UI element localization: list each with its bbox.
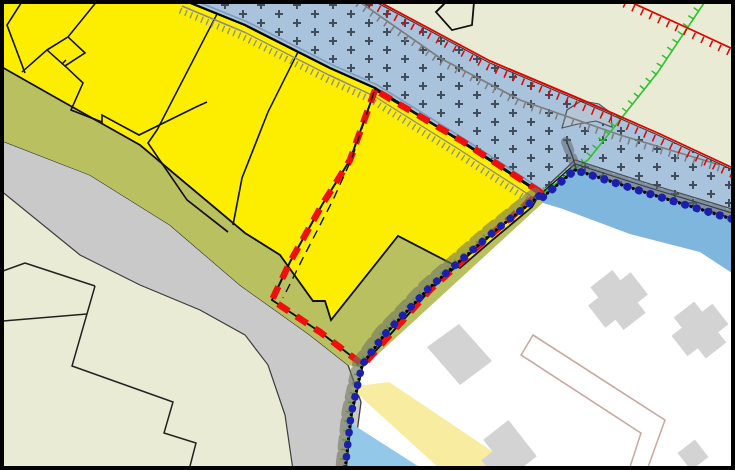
map-viewport[interactable] (0, 0, 735, 470)
map-canvas[interactable] (0, 0, 735, 470)
